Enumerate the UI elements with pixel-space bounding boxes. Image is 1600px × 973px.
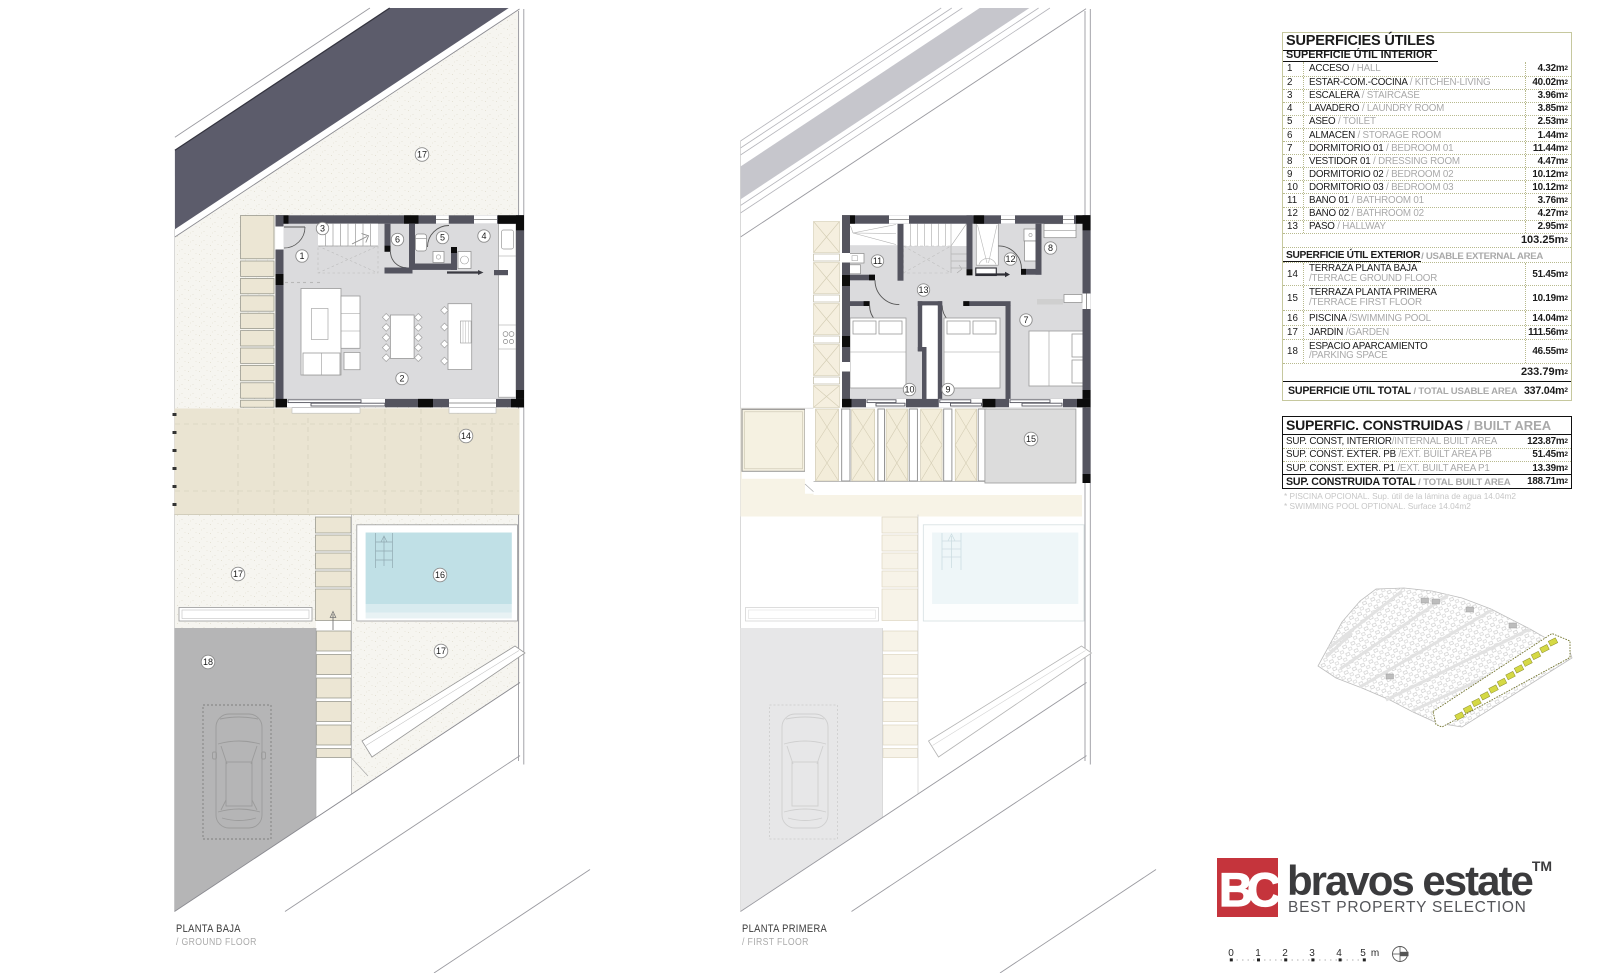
svg-text:17: 17: [233, 569, 243, 579]
svg-text:2: 2: [1282, 948, 1288, 959]
svg-text:6: 6: [395, 235, 400, 245]
svg-text:2: 2: [399, 374, 404, 384]
svg-text:11: 11: [873, 256, 882, 266]
svg-text:8: 8: [1048, 243, 1053, 253]
svg-text:17: 17: [436, 646, 446, 656]
svg-text:12: 12: [1005, 254, 1015, 264]
svg-text:18: 18: [203, 657, 213, 667]
svg-text:7: 7: [1023, 315, 1028, 325]
svg-text:4: 4: [481, 231, 486, 241]
svg-text:5: 5: [440, 233, 445, 243]
svg-text:4: 4: [1336, 948, 1342, 959]
svg-text:17: 17: [417, 150, 427, 160]
svg-text:13: 13: [918, 285, 928, 295]
svg-text:16: 16: [435, 570, 445, 580]
svg-text:0: 0: [1228, 948, 1234, 959]
svg-text:14: 14: [461, 431, 471, 441]
svg-text:1: 1: [299, 251, 304, 261]
svg-text:1: 1: [1255, 948, 1261, 959]
svg-text:15: 15: [1026, 434, 1036, 444]
svg-text:10: 10: [904, 385, 914, 395]
svg-text:5: 5: [1360, 948, 1366, 959]
svg-text:3: 3: [320, 224, 325, 234]
svg-text:m: m: [1371, 948, 1379, 959]
svg-text:9: 9: [945, 385, 950, 395]
svg-text:3: 3: [1309, 948, 1315, 959]
